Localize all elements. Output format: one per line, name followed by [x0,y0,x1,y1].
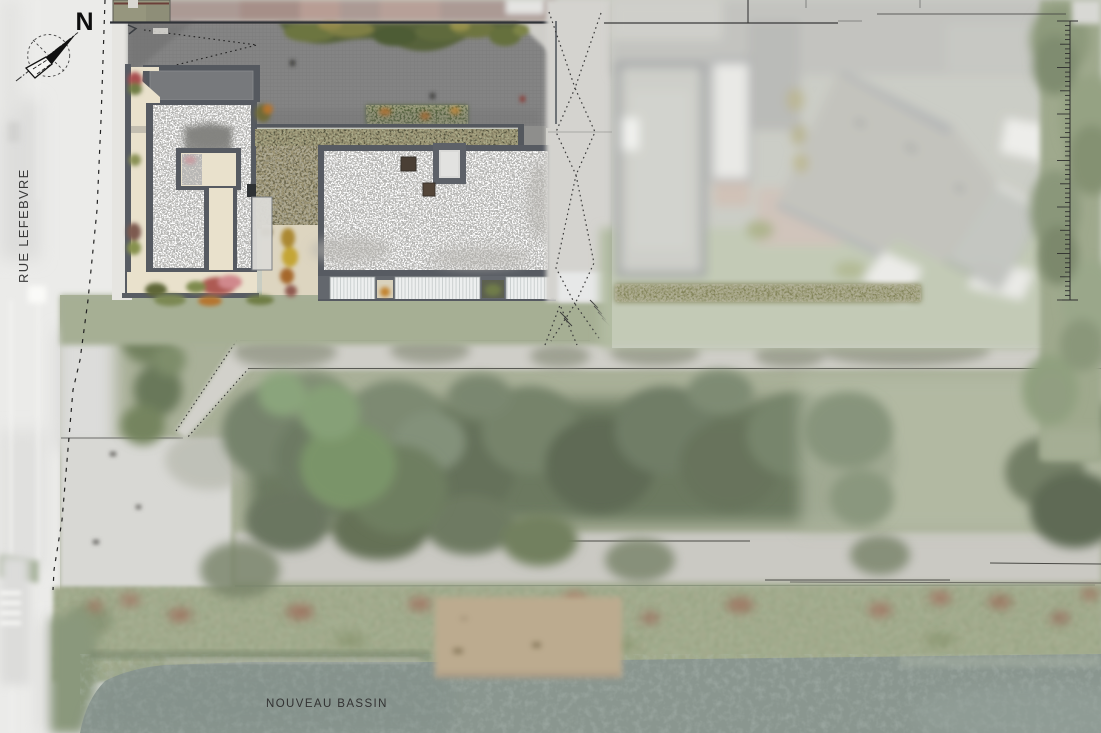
svg-text:NOUVEAU BASSIN: NOUVEAU BASSIN [266,698,388,710]
svg-text:RUE LEFEBVRE: RUE LEFEBVRE [16,168,31,283]
svg-text:N: N [76,8,94,36]
